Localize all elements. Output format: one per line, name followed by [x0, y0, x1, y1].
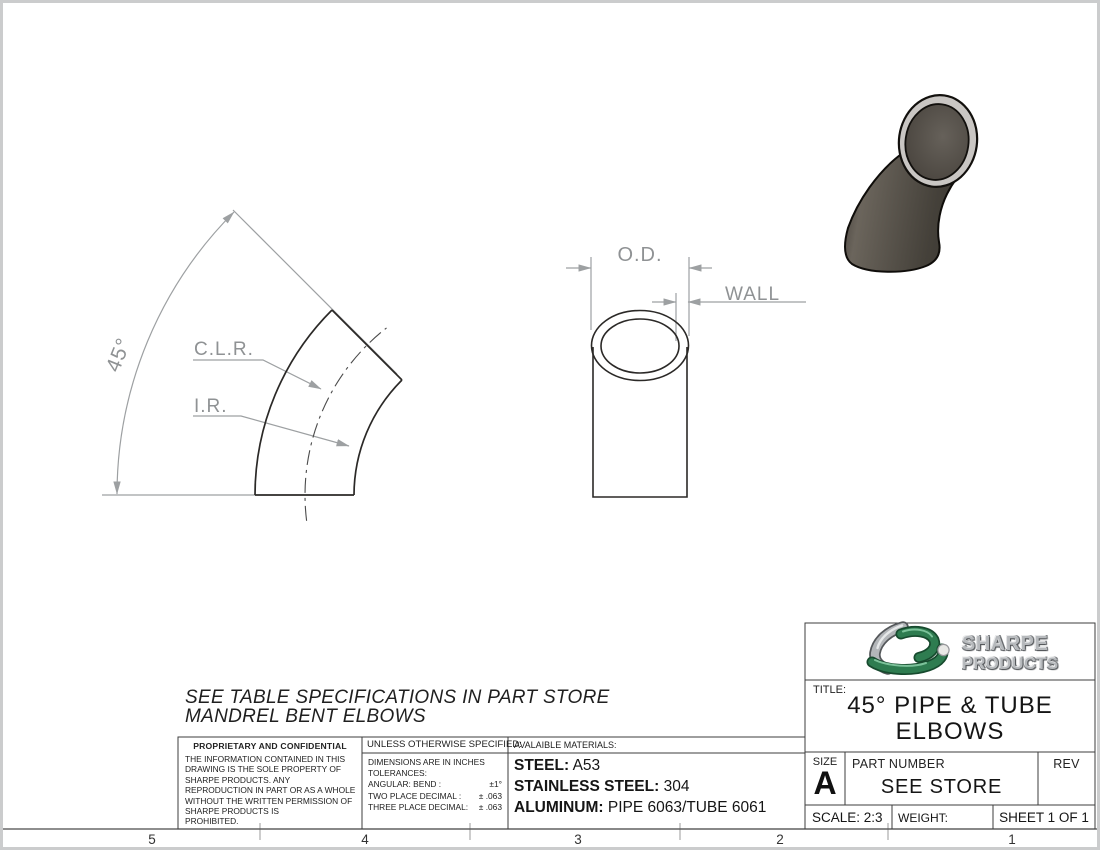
material-label: STEEL:	[514, 757, 569, 774]
od-dimension-label: O.D.	[605, 244, 675, 267]
tolerance-row-value: ± .063	[479, 791, 502, 802]
zone-label: 5	[148, 832, 156, 847]
material-item: ALUMINUM: PIPE 6063/TUBE 6061	[514, 797, 805, 818]
material-value: 304	[664, 778, 690, 795]
wall-dimension-label: WALL	[725, 284, 780, 306]
tolerance-dims-line: DIMENSIONS ARE IN INCHES	[368, 757, 502, 768]
brand-name-top: SHARPE	[962, 633, 1048, 656]
proprietary-body: THE INFORMATION CONTAINED IN THIS DRAWIN…	[185, 754, 362, 827]
proprietary-heading: PROPRIETARY AND CONFIDENTIAL	[178, 741, 362, 751]
rev-label: REV	[1038, 757, 1095, 771]
proprietary-block: PROPRIETARY AND CONFIDENTIAL THE INFORMA…	[178, 737, 362, 827]
weight-label: WEIGHT:	[898, 811, 948, 825]
materials-heading: AVALAIBLE MATERIALS:	[514, 740, 805, 750]
part-number-value: SEE STORE	[845, 776, 1038, 799]
sheet-frame	[3, 823, 1097, 840]
tolerance-row-label: ANGULAR: BEND :	[368, 779, 441, 790]
drawing-sheet: 45° C.L.R. I.R. O.D. WALL SEE TABLE SPEC…	[0, 0, 1100, 850]
tolerance-row-label: TWO PLACE DECIMAL :	[368, 791, 461, 802]
tolerance-row: ANGULAR: BEND : ±1°	[368, 779, 502, 790]
pipe-outline	[592, 311, 689, 498]
size-value: A	[805, 765, 845, 802]
material-value: PIPE 6063/TUBE 6061	[608, 799, 767, 816]
tolerance-row: THREE PLACE DECIMAL: ± .063	[368, 802, 502, 813]
part-number-label: PART NUMBER	[852, 757, 945, 771]
elbow-centerline-arc	[305, 328, 386, 521]
elbow-45-view	[102, 210, 402, 521]
zone-label: 1	[1008, 832, 1016, 847]
clr-dimension-label: C.L.R.	[194, 339, 254, 361]
sheet-number: SHEET 1 OF 1	[993, 810, 1095, 825]
tolerance-row: TWO PLACE DECIMAL : ± .063	[368, 791, 502, 802]
material-label: ALUMINUM:	[514, 799, 604, 816]
drawing-title-line-1: 45° PIPE & TUBE	[805, 692, 1095, 720]
scale-value: SCALE: 2:3	[812, 810, 883, 825]
sharpe-logo-emblem	[872, 626, 949, 670]
material-item: STAINLESS STEEL: 304	[514, 776, 805, 797]
tolerance-row-value: ± .063	[479, 802, 502, 813]
note-line-2: MANDREL BENT ELBOWS	[185, 706, 426, 728]
elbow-3d-render	[845, 90, 983, 272]
tolerance-row-value: ±1°	[489, 779, 502, 790]
zone-label: 4	[361, 832, 369, 847]
tolerance-tol-line: TOLERANCES:	[368, 768, 502, 779]
tolerance-row-label: THREE PLACE DECIMAL:	[368, 802, 468, 813]
material-value: A53	[573, 757, 601, 774]
material-label: STAINLESS STEEL:	[514, 778, 659, 795]
logo-pipe-end-cap	[938, 644, 949, 655]
zone-label: 2	[776, 832, 784, 847]
material-item: STEEL: A53	[514, 755, 805, 776]
tolerances-heading: UNLESS OTHERWISE SPECIFIED:	[367, 739, 508, 750]
elbow-outline	[255, 310, 402, 495]
zone-label: 3	[574, 832, 582, 847]
drawing-title-line-2: ELBOWS	[805, 718, 1095, 746]
tolerances-block: UNLESS OTHERWISE SPECIFIED: DIMENSIONS A…	[362, 737, 508, 813]
ir-dimension-label: I.R.	[194, 396, 228, 418]
materials-block: AVALAIBLE MATERIALS: STEEL: A53 STAINLES…	[508, 737, 805, 818]
brand-name-bottom: PRODUCTS	[962, 655, 1059, 674]
